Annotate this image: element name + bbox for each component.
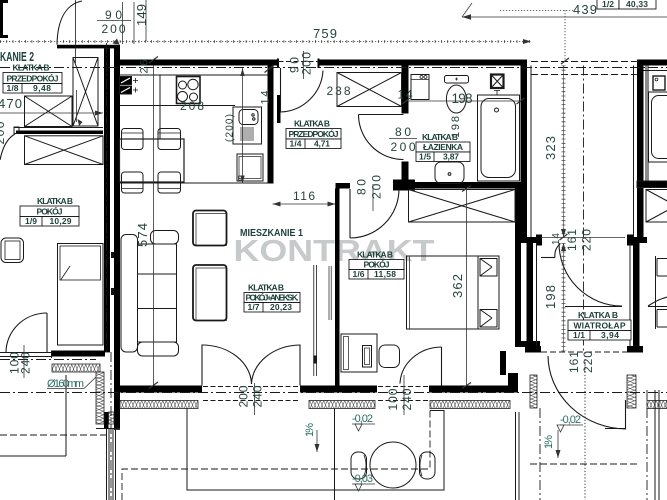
svg-text:-0,02: -0,02 (560, 414, 581, 426)
svg-text:439: 439 (573, 2, 597, 17)
svg-text:200: 200 (300, 52, 314, 75)
svg-text:1/5: 1/5 (419, 152, 431, 162)
svg-text:KLATKA B: KLATKA B (13, 63, 50, 73)
svg-text:(200): (200) (225, 114, 236, 142)
svg-text:1/4: 1/4 (290, 139, 302, 149)
svg-text:KLATKA B: KLATKA B (294, 119, 330, 129)
svg-text:PRZEDPOKÓJ: PRZEDPOKÓJ (289, 128, 339, 139)
svg-text:362: 362 (450, 274, 465, 298)
svg-text:14: 14 (551, 233, 562, 245)
svg-text:-0,02: -0,02 (352, 413, 373, 425)
svg-text:1/8: 1/8 (7, 83, 19, 93)
svg-text:198: 198 (452, 91, 473, 106)
svg-text:POKÓJ: POKÓJ (37, 206, 63, 217)
svg-text:220: 220 (580, 229, 594, 251)
svg-text:161: 161 (567, 351, 581, 373)
svg-text:KLATKA B: KLATKA B (578, 310, 618, 320)
svg-text:470: 470 (0, 96, 22, 111)
svg-text:1/2: 1/2 (602, 0, 614, 9)
svg-text:240: 240 (251, 385, 265, 407)
svg-text:3,94: 3,94 (601, 330, 619, 340)
svg-text:MIESZKANIE 1: MIESZKANIE 1 (240, 227, 303, 239)
svg-text:POKÓJ+ANEKS K.: POKÓJ+ANEKS K. (246, 292, 299, 303)
svg-text:100: 100 (386, 388, 400, 410)
svg-text:9,48: 9,48 (33, 83, 51, 93)
svg-text:1/7: 1/7 (248, 302, 260, 312)
svg-text:240: 240 (19, 352, 33, 374)
svg-text:3,87: 3,87 (443, 152, 459, 162)
svg-text:1%: 1% (304, 423, 316, 437)
svg-text:-0,03: -0,03 (352, 473, 373, 485)
svg-text:4,71: 4,71 (314, 139, 330, 149)
svg-text:ŁAZIENKA: ŁAZIENKA (423, 142, 463, 152)
svg-text:198: 198 (543, 285, 558, 309)
svg-text:14: 14 (398, 88, 413, 102)
svg-text:10,29: 10,29 (50, 216, 72, 226)
svg-text:238: 238 (327, 84, 351, 98)
svg-text:40,33: 40,33 (626, 0, 648, 9)
svg-text:574: 574 (135, 223, 150, 247)
svg-text:14: 14 (260, 91, 272, 105)
svg-text:116: 116 (293, 189, 315, 203)
svg-text:240: 240 (400, 388, 414, 410)
svg-text:WIATROŁAP: WIATROŁAP (574, 321, 626, 331)
svg-text:11,58: 11,58 (374, 269, 396, 279)
svg-text:20,23: 20,23 (270, 302, 292, 312)
svg-text:PRZEDPOKÓJ: PRZEDPOKÓJ (7, 73, 59, 84)
svg-text:POKÓJ: POKÓJ (364, 259, 390, 270)
svg-text:KLATKA B: KLATKA B (37, 196, 73, 206)
svg-text:161: 161 (565, 229, 579, 251)
svg-text:1/1: 1/1 (573, 330, 585, 340)
svg-text:759: 759 (313, 26, 337, 41)
svg-text:323: 323 (543, 136, 558, 160)
svg-text:1/6: 1/6 (353, 269, 365, 279)
svg-text:200: 200 (391, 140, 416, 154)
svg-text:200: 200 (0, 121, 7, 144)
svg-text:200: 200 (370, 175, 384, 199)
svg-text:208: 208 (180, 99, 204, 113)
svg-text:220: 220 (581, 351, 595, 373)
svg-text:KLATKA B: KLATKA B (422, 132, 458, 142)
svg-text:149: 149 (134, 4, 149, 26)
svg-text:Ø160mm: Ø160mm (47, 378, 84, 390)
svg-text:26: 26 (139, 60, 151, 74)
svg-text:KLATKA B: KLATKA B (357, 250, 393, 260)
svg-text:1/9: 1/9 (25, 216, 37, 226)
svg-text:1%: 1% (543, 435, 555, 449)
svg-text:200: 200 (102, 22, 126, 36)
svg-text:KLATKA B: KLATKA B (248, 283, 284, 293)
svg-text:200: 200 (237, 385, 251, 407)
